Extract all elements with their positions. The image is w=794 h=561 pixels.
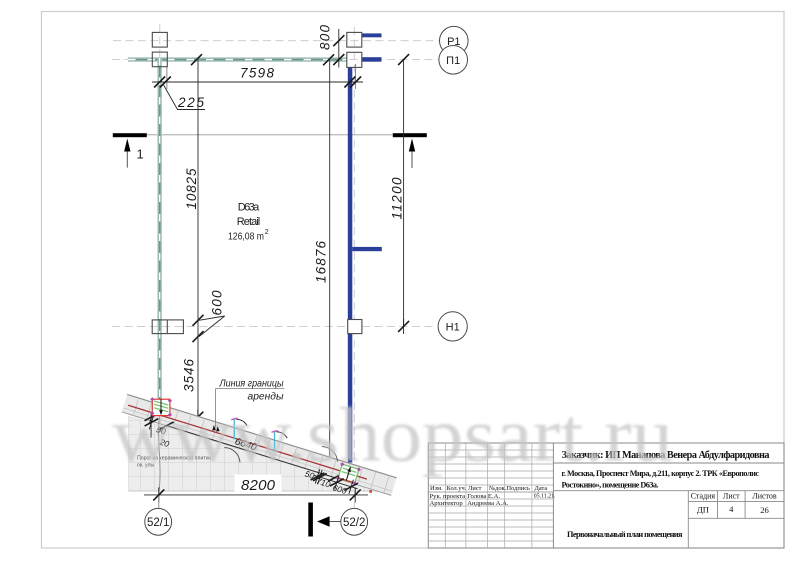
- svg-text:Ростокино», помещение D63a.: Ростокино», помещение D63a.: [562, 481, 659, 490]
- svg-text:52/1: 52/1: [147, 517, 169, 529]
- svg-text:D63a: D63a: [238, 202, 260, 214]
- svg-text:11200: 11200: [390, 177, 405, 219]
- svg-text:600: 600: [210, 290, 225, 315]
- svg-text:4: 4: [729, 504, 734, 514]
- svg-text:Лист: Лист: [723, 492, 740, 501]
- svg-text:1: 1: [137, 147, 144, 162]
- svg-text:Подпись: Подпись: [507, 485, 531, 492]
- svg-text:52/2: 52/2: [343, 517, 365, 529]
- svg-text:Кол.уч.: Кол.уч.: [447, 485, 467, 492]
- svg-text:Первоначальный план помещения: Первоначальный план помещения: [567, 530, 683, 539]
- svg-text:www.shopsart.ru: www.shopsart.ru: [112, 392, 673, 478]
- svg-text:Голова Е.А.: Голова Е.А.: [467, 493, 500, 500]
- svg-text:16876: 16876: [314, 241, 329, 283]
- svg-text:Архитектор: Архитектор: [430, 500, 464, 507]
- svg-text:Дата: Дата: [535, 485, 548, 492]
- svg-text:Н1: Н1: [446, 322, 460, 334]
- svg-text:Лист: Лист: [468, 485, 482, 492]
- svg-text:10825: 10825: [184, 168, 199, 209]
- svg-text:П1: П1: [446, 55, 460, 67]
- svg-text:126,08 m: 126,08 m: [228, 231, 264, 242]
- svg-text:2: 2: [265, 229, 269, 236]
- svg-text:26: 26: [760, 505, 769, 515]
- svg-text:225: 225: [177, 95, 204, 110]
- svg-text:7598: 7598: [240, 66, 274, 81]
- svg-text:05.11.21.: 05.11.21.: [534, 493, 556, 499]
- svg-text:Линия границы: Линия границы: [219, 377, 284, 389]
- svg-text:Андреева А.А.: Андреева А.А.: [467, 500, 509, 507]
- svg-text:8200: 8200: [241, 477, 276, 494]
- svg-text:№док.: №док.: [489, 485, 507, 492]
- svg-text:800: 800: [318, 25, 333, 50]
- svg-text:Рук. проекта: Рук. проекта: [430, 493, 466, 500]
- svg-text:Листов: Листов: [752, 492, 777, 501]
- svg-text:Retail: Retail: [237, 216, 261, 228]
- svg-text:Стадия: Стадия: [691, 492, 716, 501]
- svg-text:ДП: ДП: [697, 505, 709, 515]
- svg-text:3546: 3546: [182, 359, 197, 392]
- svg-text:Изм.: Изм.: [430, 485, 443, 492]
